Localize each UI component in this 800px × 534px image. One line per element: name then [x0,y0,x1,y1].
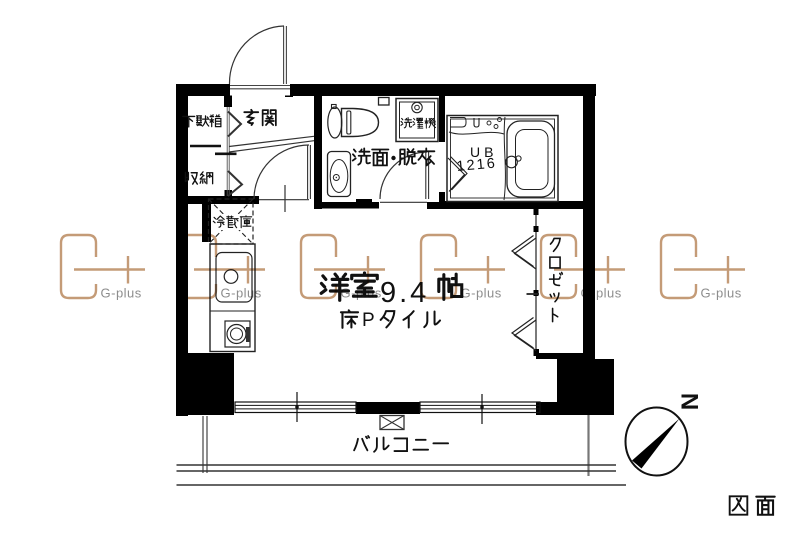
svg-text:N: N [676,393,703,410]
svg-text:G-plus: G-plus [101,286,142,301]
svg-text:P: P [362,310,375,331]
